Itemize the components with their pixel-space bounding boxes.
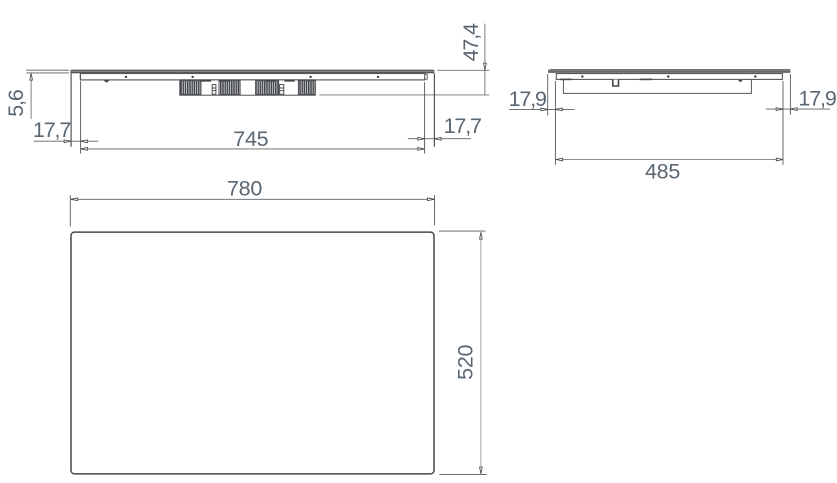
svg-text:47,4: 47,4 <box>459 23 483 61</box>
svg-text:5,6: 5,6 <box>4 89 28 117</box>
svg-text:745: 745 <box>233 127 268 151</box>
svg-text:17,7: 17,7 <box>33 118 70 142</box>
svg-text:780: 780 <box>227 177 262 201</box>
svg-text:520: 520 <box>453 344 477 379</box>
svg-text:17,7: 17,7 <box>444 114 481 138</box>
svg-text:17,9: 17,9 <box>509 87 546 111</box>
svg-text:485: 485 <box>645 159 680 183</box>
svg-text:17,9: 17,9 <box>798 87 835 111</box>
